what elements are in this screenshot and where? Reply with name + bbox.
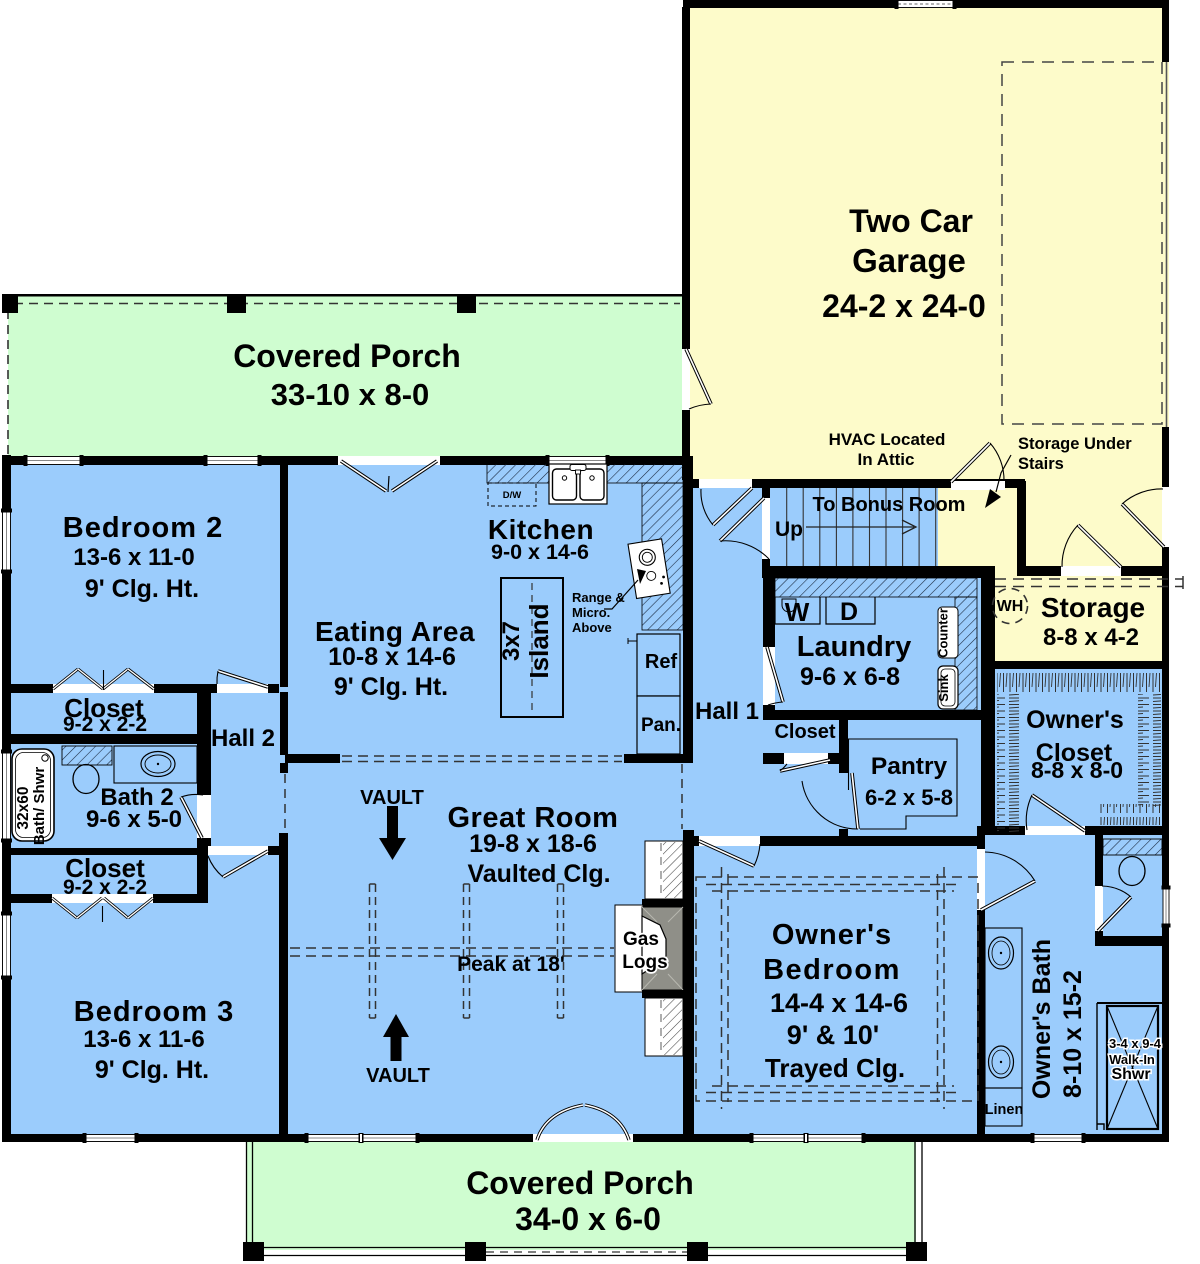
svg-text:Laundry: Laundry — [797, 631, 911, 663]
svg-text:Logs: Logs — [622, 952, 667, 973]
svg-text:Covered Porch: Covered Porch — [233, 338, 461, 374]
svg-text:VAULT: VAULT — [360, 787, 424, 809]
svg-text:Pantry: Pantry — [871, 753, 948, 780]
svg-text:Two Car: Two Car — [849, 203, 973, 239]
svg-text:33-10 x 8-0: 33-10 x 8-0 — [271, 377, 430, 412]
svg-text:Bedroom 2: Bedroom 2 — [63, 512, 223, 544]
svg-text:Gas: Gas — [623, 929, 659, 950]
svg-text:Linen: Linen — [985, 1102, 1024, 1118]
svg-text:Sink: Sink — [936, 674, 951, 702]
svg-text:13-6 x 11-0: 13-6 x 11-0 — [73, 544, 194, 571]
svg-text:To Bonus Room: To Bonus Room — [813, 494, 966, 516]
svg-text:Owner's: Owner's — [1026, 706, 1124, 734]
svg-text:10-8 x 14-6: 10-8 x 14-6 — [328, 643, 456, 671]
svg-text:9' & 10': 9' & 10' — [787, 1020, 879, 1050]
svg-text:34-0 x 6-0: 34-0 x 6-0 — [515, 1201, 661, 1237]
svg-text:9-2 x 2-2: 9-2 x 2-2 — [63, 876, 147, 899]
svg-text:13-6 x 11-6: 13-6 x 11-6 — [83, 1026, 204, 1053]
svg-text:Stairs: Stairs — [1018, 455, 1064, 473]
svg-text:19-8 x 18-6: 19-8 x 18-6 — [469, 830, 597, 858]
svg-text:Owner's Bath: Owner's Bath — [1028, 939, 1056, 1099]
svg-text:Bedroom 3: Bedroom 3 — [74, 996, 234, 1028]
svg-text:VAULT: VAULT — [366, 1065, 430, 1087]
svg-text:Bath/ Shwr: Bath/ Shwr — [31, 767, 48, 846]
svg-text:Storage Under: Storage Under — [1018, 435, 1132, 453]
svg-text:8-8 x 4-2: 8-8 x 4-2 — [1043, 624, 1139, 651]
svg-text:9' Clg. Ht.: 9' Clg. Ht. — [95, 1056, 209, 1084]
svg-text:Garage: Garage — [852, 242, 966, 279]
svg-text:8-8 x 8-0: 8-8 x 8-0 — [1031, 757, 1123, 783]
svg-text:Up: Up — [775, 518, 803, 541]
svg-text:Range &: Range & — [572, 590, 625, 605]
svg-text:Trayed Clg.: Trayed Clg. — [765, 1053, 905, 1083]
svg-text:Vaulted Clg.: Vaulted Clg. — [467, 860, 610, 888]
svg-text:In Attic: In Attic — [858, 450, 915, 469]
svg-text:9' Clg. Ht.: 9' Clg. Ht. — [85, 575, 199, 603]
svg-text:Storage: Storage — [1041, 592, 1145, 623]
svg-text:W: W — [785, 597, 810, 627]
svg-text:9-6 x 6-8: 9-6 x 6-8 — [800, 663, 900, 691]
svg-text:3x7: 3x7 — [498, 621, 525, 661]
svg-text:Hall 1: Hall 1 — [695, 698, 759, 725]
svg-text:Owner's: Owner's — [772, 919, 892, 951]
svg-text:Pan.: Pan. — [641, 715, 681, 736]
svg-text:Shwr: Shwr — [1111, 1066, 1150, 1083]
svg-text:Peak at 18': Peak at 18' — [457, 953, 565, 976]
svg-text:24-2 x 24-0: 24-2 x 24-0 — [822, 288, 986, 324]
svg-text:D: D — [840, 598, 858, 626]
svg-text:Counter: Counter — [936, 608, 951, 658]
svg-text:9' Clg. Ht.: 9' Clg. Ht. — [334, 673, 448, 701]
svg-text:8-10 x 15-2: 8-10 x 15-2 — [1059, 970, 1087, 1098]
svg-text:WH: WH — [997, 598, 1024, 615]
svg-text:32x60: 32x60 — [15, 786, 32, 829]
svg-text:HVAC Located: HVAC Located — [829, 430, 946, 449]
svg-text:Ref: Ref — [645, 651, 678, 673]
svg-text:Bedroom: Bedroom — [763, 954, 901, 986]
svg-text:Island: Island — [524, 603, 554, 678]
svg-text:Covered Porch: Covered Porch — [466, 1165, 694, 1201]
svg-text:14-4 x 14-6: 14-4 x 14-6 — [770, 988, 908, 1018]
svg-text:D/W: D/W — [503, 490, 522, 501]
svg-text:9-2 x 2-2: 9-2 x 2-2 — [63, 713, 147, 736]
svg-text:9-0 x 14-6: 9-0 x 14-6 — [491, 540, 589, 564]
svg-text:Micro.: Micro. — [572, 605, 610, 620]
svg-text:9-6 x 5-0: 9-6 x 5-0 — [86, 806, 182, 833]
svg-text:6-2 x 5-8: 6-2 x 5-8 — [865, 785, 953, 810]
svg-text:Above: Above — [572, 620, 612, 635]
svg-text:3-4 x 9-4: 3-4 x 9-4 — [1109, 1036, 1162, 1051]
svg-text:Hall 2: Hall 2 — [211, 725, 275, 752]
svg-text:Walk-In: Walk-In — [1109, 1052, 1155, 1067]
svg-text:Closet: Closet — [774, 721, 835, 743]
